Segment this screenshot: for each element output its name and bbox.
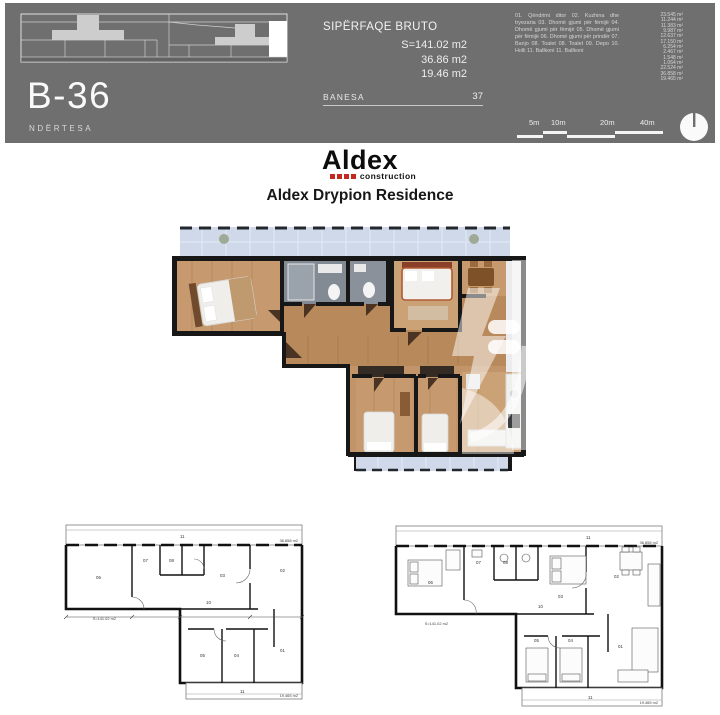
aldex-logo: Aldex (0, 146, 720, 174)
area-summary: SIPËRFAQE BRUTO S=141.02 m2 36.86 m2 19.… (323, 21, 483, 82)
scale-label: 5m (529, 118, 539, 127)
svg-text:03: 03 (220, 573, 225, 578)
unit-code: B-36 (27, 75, 111, 117)
svg-text:11: 11 (180, 534, 185, 539)
svg-text:03: 03 (558, 594, 563, 599)
logo-square-icon (351, 174, 356, 179)
logo-square-icon (337, 174, 342, 179)
scale-segment (615, 131, 663, 134)
room-legend-text: 01. Qëndrimi ditor 02. Kuzhina dhe tryez… (515, 13, 619, 56)
svg-text:07: 07 (476, 560, 481, 565)
scale-segment (517, 135, 543, 138)
svg-text:05: 05 (200, 653, 205, 658)
svg-text:10: 10 (538, 604, 543, 609)
svg-text:02: 02 (280, 568, 285, 573)
scale-bar: 5m 10m 20m 40m (505, 111, 675, 143)
area-line-balcony: 19.46 m2 (323, 67, 483, 82)
brand-block: Aldex construction Aldex Drypion Residen… (0, 146, 720, 205)
svg-text:06: 06 (96, 575, 101, 580)
svg-text:36.858 m2: 36.858 m2 (640, 540, 658, 545)
svg-text:06: 06 (428, 580, 433, 585)
floorplan-right-drawing: 06 07 08 03 02 10 05 04 01 11 11 36.858 … (386, 520, 670, 710)
svg-text:11: 11 (586, 535, 591, 540)
svg-text:19.465 m2: 19.465 m2 (280, 693, 298, 698)
floorplan-left-drawing: 06 07 08 03 02 10 05 04 01 11 11 36.858 … (58, 517, 310, 705)
svg-text:S=141.02 m2: S=141.02 m2 (425, 621, 448, 626)
svg-text:04: 04 (234, 653, 239, 658)
scale-segment (567, 135, 615, 138)
svg-text:11: 11 (240, 689, 245, 694)
svg-text:S=141.02 m2: S=141.02 m2 (93, 616, 116, 621)
header-banner: B-36 NDËRTESA SIPËRFAQE BRUTO S=141.02 m… (5, 3, 715, 143)
balcony-bottom (356, 457, 508, 471)
svg-text:02: 02 (614, 574, 619, 579)
svg-text:10: 10 (206, 600, 211, 605)
banesa-number: 37 (472, 91, 483, 102)
banesa-label: BANESA (323, 92, 365, 102)
logo-subrow: construction (26, 171, 720, 181)
scale-segment (543, 131, 567, 134)
scale-label: 40m (640, 118, 655, 127)
area-line-total: S=141.02 m2 (323, 38, 483, 53)
logo-subtext: construction (360, 171, 416, 181)
building-elevation-thumbnail (19, 11, 291, 69)
svg-text:19.465 m2: 19.465 m2 (640, 700, 658, 705)
svg-text:36.858 m2: 36.858 m2 (280, 538, 298, 543)
building-label: NDËRTESA (29, 124, 93, 133)
svg-text:08: 08 (169, 558, 174, 563)
residence-title: Aldex Drypion Residence (0, 187, 720, 205)
svg-text:08: 08 (503, 560, 508, 565)
logo-square-icon (330, 174, 335, 179)
svg-text:07: 07 (143, 558, 148, 563)
balcony-top (180, 227, 510, 256)
room-legend-areas: 23.545 m² 11.244 m² 11.383 m² 9.987 m² 1… (625, 13, 683, 82)
main-3d-floorplan (168, 224, 534, 474)
svg-text:01: 01 (280, 648, 285, 653)
svg-text:05: 05 (534, 638, 539, 643)
compass-icon (677, 110, 711, 144)
apartment-number-row: BANESA 37 (323, 91, 483, 106)
scale-label: 10m (551, 118, 566, 127)
svg-text:04: 04 (568, 638, 573, 643)
brochure-page: B-36 NDËRTESA SIPËRFAQE BRUTO S=141.02 m… (0, 0, 720, 715)
area-line-terrace: 36.86 m2 (323, 53, 483, 68)
svg-text:11: 11 (588, 695, 593, 700)
svg-text:01: 01 (618, 644, 623, 649)
area-title: SIPËRFAQE BRUTO (323, 21, 483, 33)
scale-label: 20m (600, 118, 615, 127)
legend-area-value: 19.465 m² (625, 77, 683, 82)
logo-square-icon (344, 174, 349, 179)
